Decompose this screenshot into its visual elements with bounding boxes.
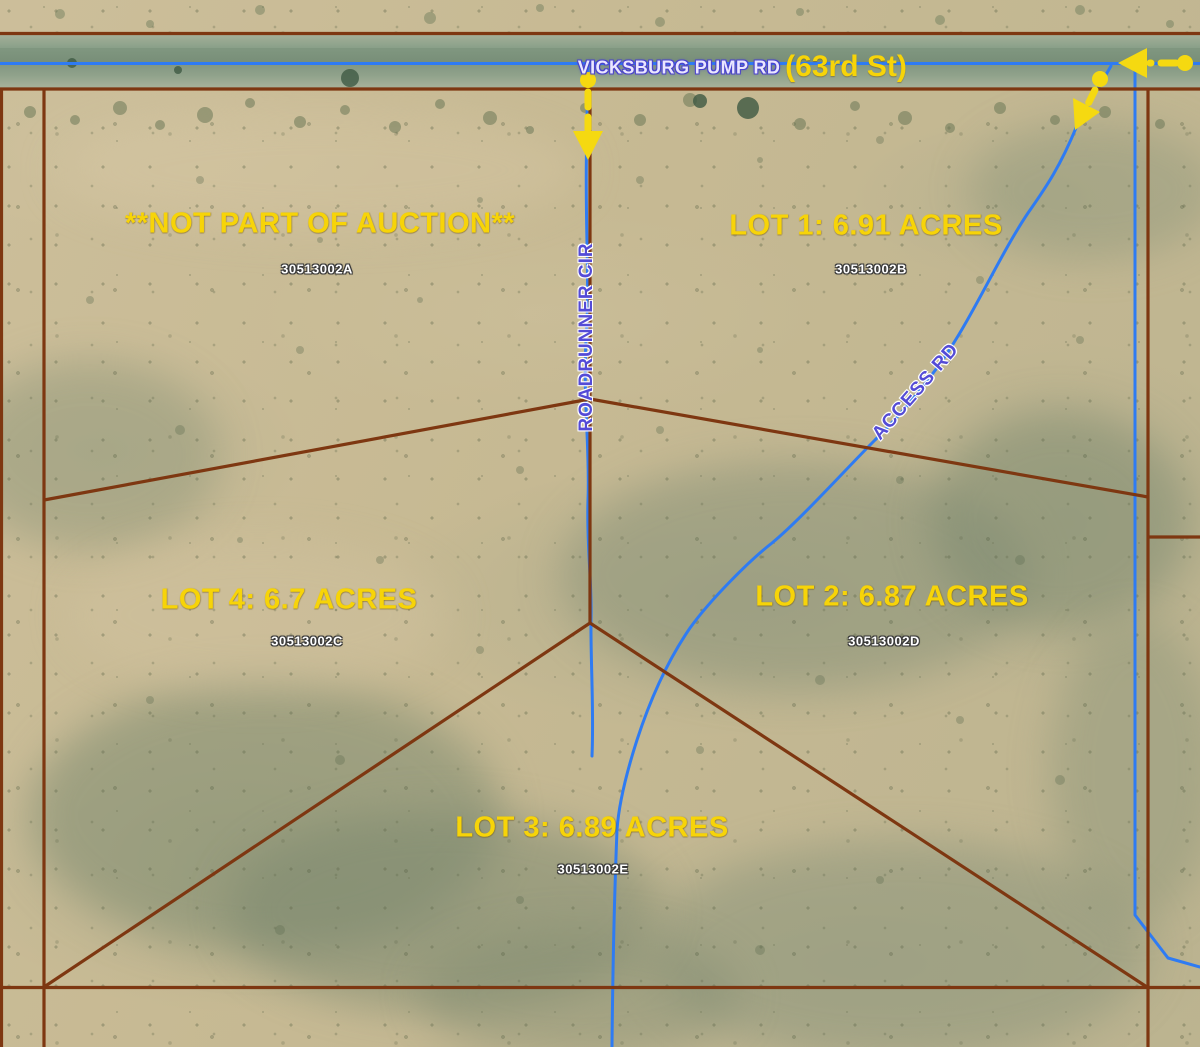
lot3-label: LOT 3: 6.89 ACRES — [455, 812, 728, 845]
east-side-road-line — [1135, 64, 1200, 967]
excluded-parcel-apn: 30513002A — [281, 262, 353, 277]
lot3-apn: 30513002E — [557, 862, 628, 877]
auction-parcel-map: VICKSBURG PUMP RD (63rd St) ROADRUNNER C… — [0, 0, 1200, 1047]
excluded-parcel-label: **NOT PART OF AUCTION** — [125, 208, 515, 241]
lot4-apn: 30513002C — [271, 634, 343, 649]
63rd-st-label: (63rd St) — [785, 50, 907, 84]
vicksburg-pump-rd-label: VICKSBURG PUMP RD — [578, 58, 781, 79]
parcel-boundaries — [0, 34, 1200, 1047]
lot1-apn: 30513002B — [835, 262, 907, 277]
lot2-label: LOT 2: 6.87 ACRES — [755, 581, 1028, 614]
lot1-label: LOT 1: 6.91 ACRES — [729, 210, 1002, 243]
map-overlay — [0, 0, 1200, 1047]
roadrunner-cir-label: ROADRUNNER CIR — [576, 242, 598, 431]
lot2-apn: 30513002D — [848, 634, 920, 649]
lot4-label: LOT 4: 6.7 ACRES — [161, 584, 418, 617]
